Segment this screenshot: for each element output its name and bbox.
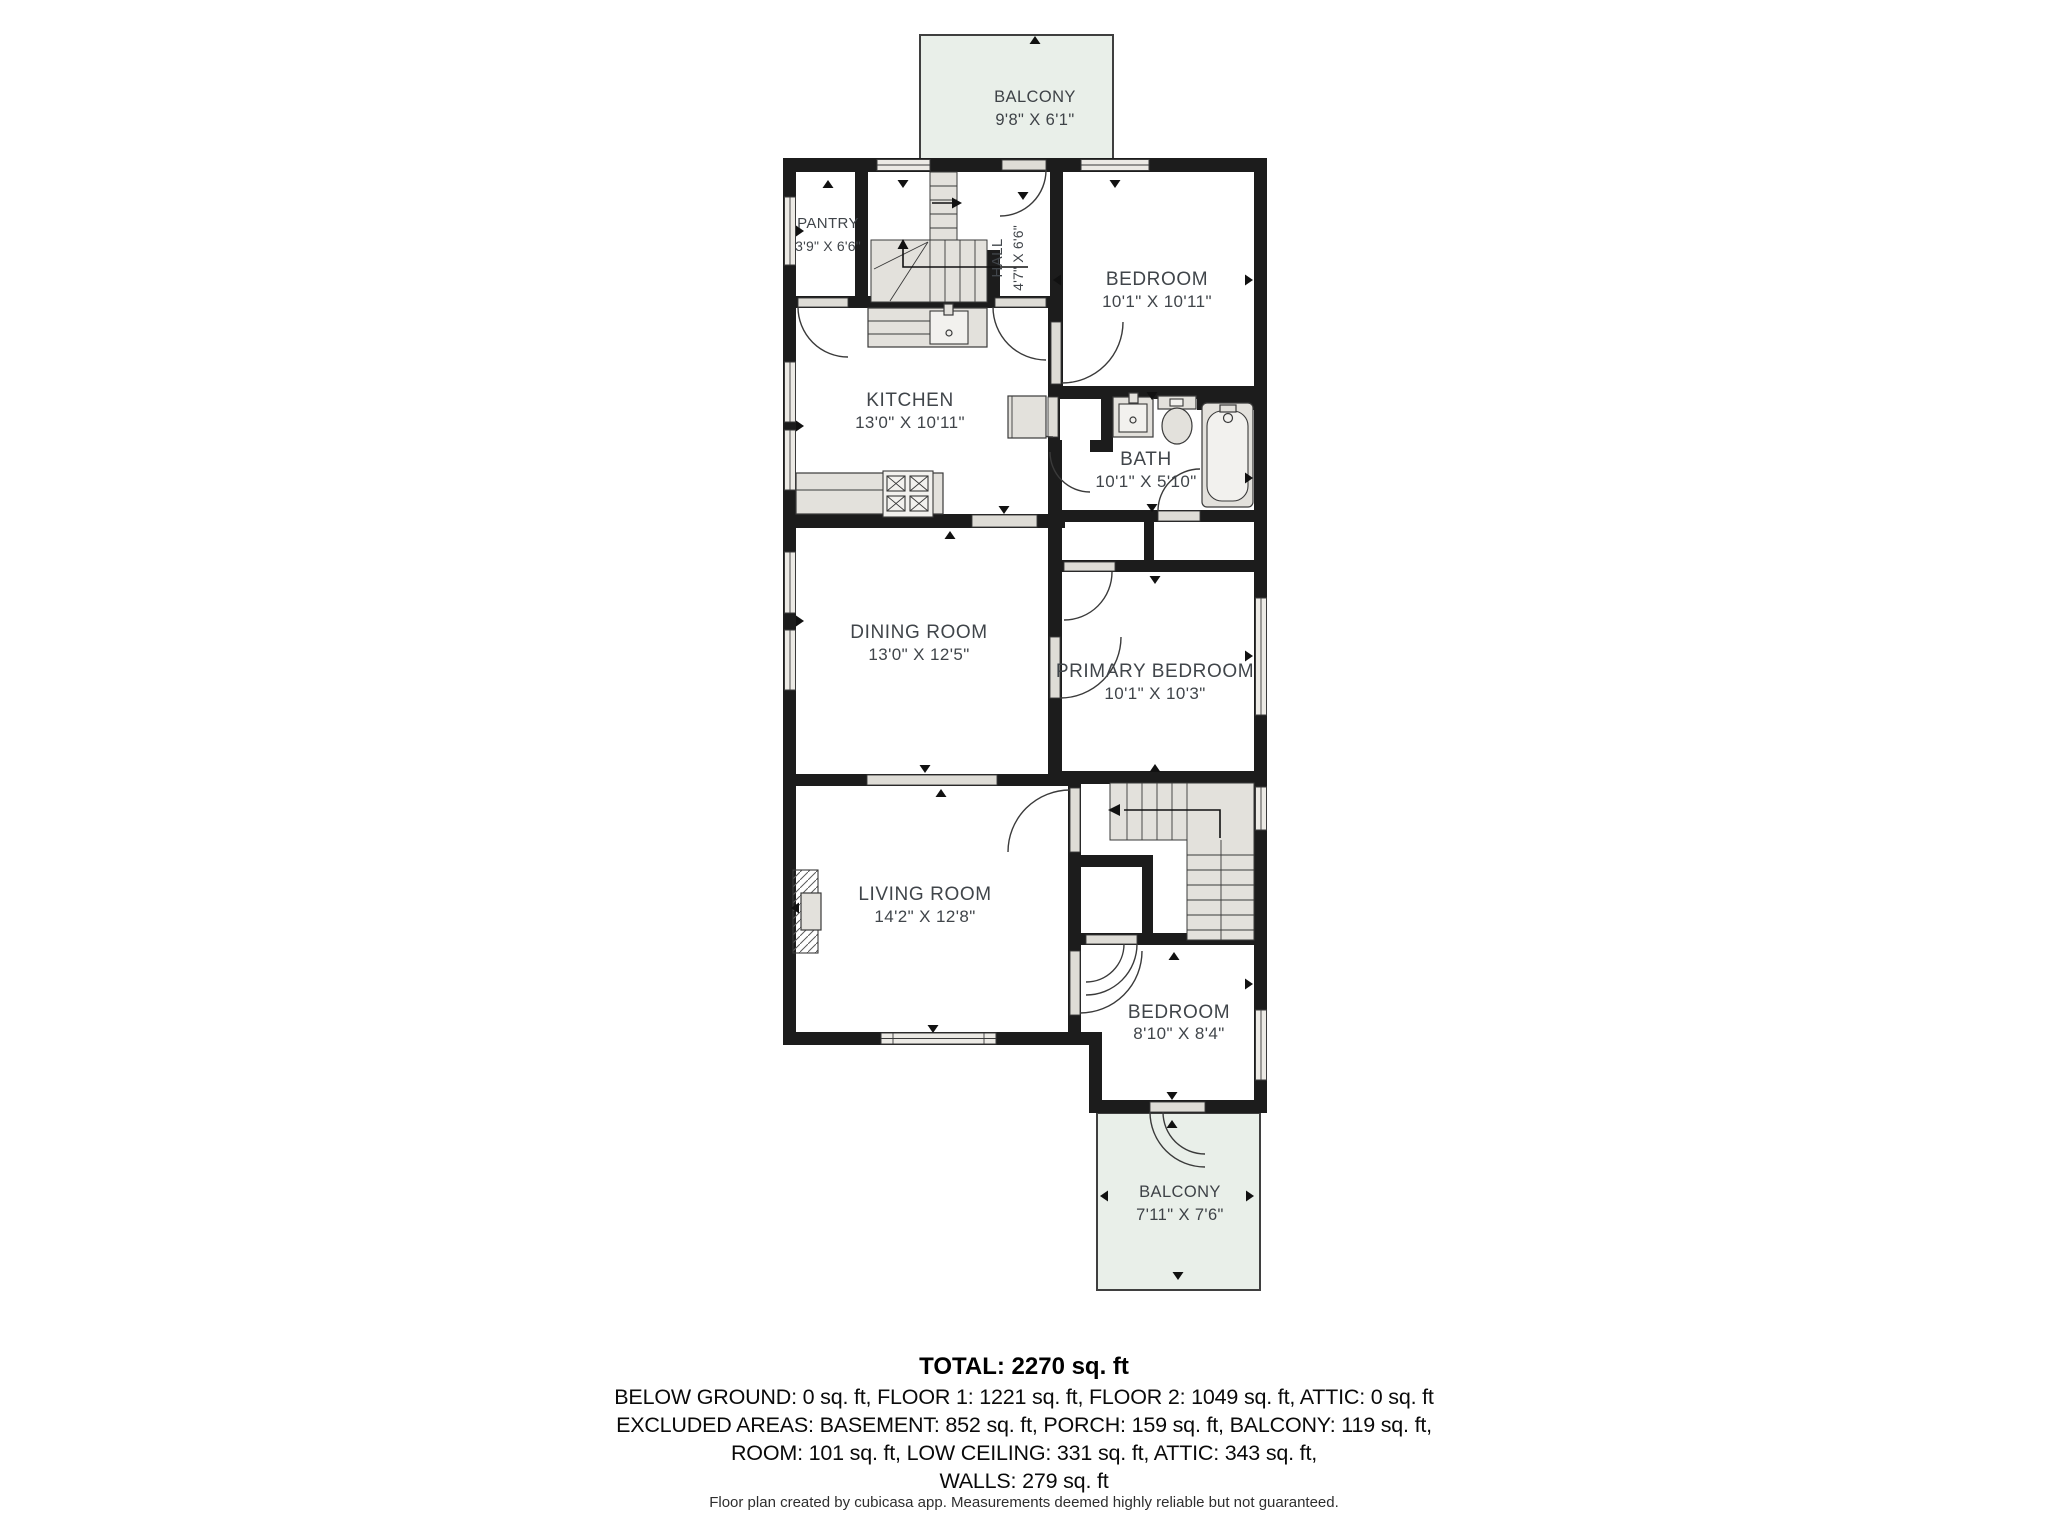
window [1256,1010,1267,1080]
bath-closet-door [1158,511,1200,521]
balcony-top-dims: 9'8" X 6'1" [995,111,1074,129]
window [881,1033,996,1044]
hall-door [995,298,1046,307]
bedroom-closet-door [1086,935,1137,944]
bath-dims: 10'1" X 5'10" [1095,472,1196,491]
balcony-top-label: BALCONY [994,88,1076,106]
bedroom-top-dims: 10'1" X 10'11" [1102,292,1212,311]
bedroom-bottom-dims: 8'10" X 8'4" [1133,1024,1224,1043]
balcony-bottom-door [1150,1102,1205,1112]
living-room-dims: 14'2" X 12'8" [874,907,975,926]
window [785,630,796,690]
living-door [1070,788,1080,852]
refrigerator [1008,396,1046,438]
window [785,362,796,422]
floor-areas: BELOW GROUND: 0 sq. ft, FLOOR 1: 1221 sq… [614,1385,1434,1409]
excluded-areas-1: EXCLUDED AREAS: BASEMENT: 852 sq. ft, PO… [616,1413,1432,1437]
area-summary: TOTAL: 2270 sq. ft BELOW GROUND: 0 sq. f… [614,1353,1434,1493]
window [785,430,796,490]
footer-disclaimer: Floor plan created by cubicasa app. Meas… [709,1494,1339,1511]
dining-living-opening [867,775,997,785]
balcony-top: BALCONY 9'8" X 6'1" [920,35,1113,165]
bathtub [1202,403,1253,507]
bedroom-bottom-label: BEDROOM [1128,1002,1230,1023]
bath-label: BATH [1120,449,1172,470]
kitchen-dims: 13'0" X 10'11" [855,413,965,432]
kitchen-vestibule-door [1048,397,1058,437]
pantry-door [798,298,848,307]
walls-area: WALLS: 279 sq. ft [939,1469,1108,1493]
bath-sink [1113,393,1153,437]
primary-closet-door [1064,562,1115,571]
balcony-bottom-label: BALCONY [1139,1183,1221,1201]
bedroom-top-label: BEDROOM [1106,269,1208,290]
floor-plan-svg: BALCONY 9'8" X 6'1" BALCONY 7'11" X 7'6" [0,0,2048,1536]
bedroom-top-door [1051,322,1061,384]
balcony-top-door [1002,160,1046,170]
bedroom-bottom-door [1070,951,1080,1015]
balcony-bottom: BALCONY 7'11" X 7'6" [1097,1113,1260,1290]
window [785,197,796,265]
hall-label: HALL [989,238,1006,277]
window [785,552,796,613]
kitchen-label: KITCHEN [866,390,954,411]
pantry-label: PANTRY [797,215,859,232]
excluded-areas-2: ROOM: 101 sq. ft, LOW CEILING: 331 sq. f… [731,1441,1317,1465]
dining-room-dims: 13'0" X 12'5" [868,645,969,664]
window [877,160,930,171]
kitchen-island [868,304,987,347]
total-area: TOTAL: 2270 sq. ft [919,1353,1129,1380]
living-room-label: LIVING ROOM [858,884,991,905]
window [1256,598,1267,715]
kitchen-dining-opening [972,515,1037,527]
window [1081,160,1149,171]
kitchen-counter-stove [796,471,943,517]
balcony-bottom-dims: 7'11" X 7'6" [1136,1206,1224,1224]
hall-dims: 4'7" X 6'6" [1010,225,1026,291]
primary-bedroom-label: PRIMARY BEDROOM [1056,661,1254,682]
floor-plan-page: BALCONY 9'8" X 6'1" BALCONY 7'11" X 7'6" [0,0,2048,1536]
window [1256,787,1267,830]
dining-room-label: DINING ROOM [850,622,988,643]
primary-bedroom-dims: 10'1" X 10'3" [1104,684,1205,703]
pantry-dims: 3'9" X 6'6" [795,238,861,254]
